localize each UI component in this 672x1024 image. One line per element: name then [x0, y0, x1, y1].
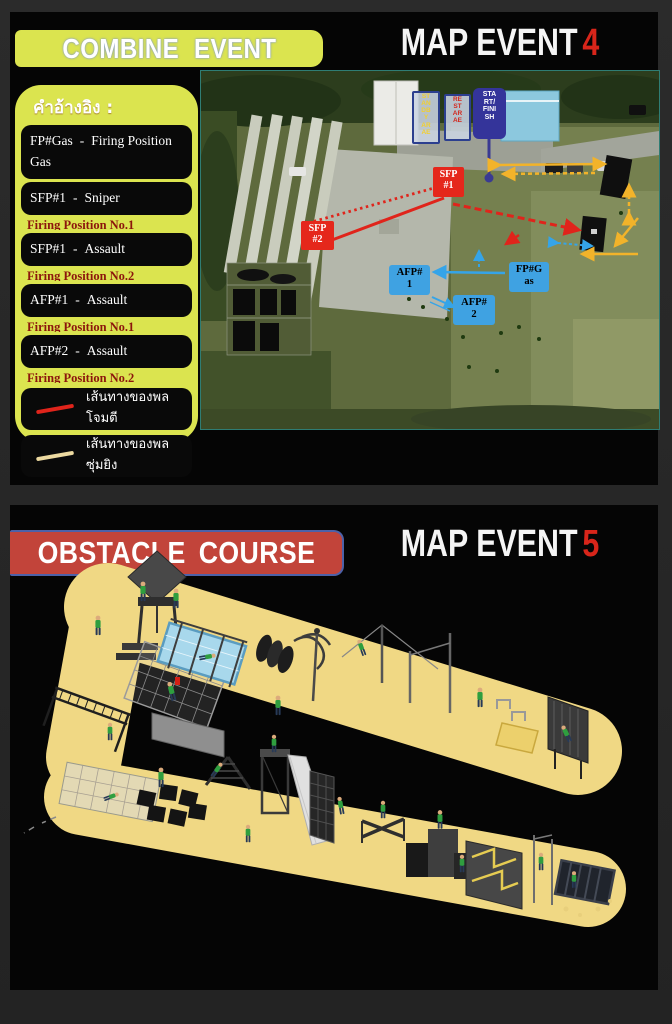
slide-map-event-5: OBSTACLE COURSE MAP EVENT5 [10, 505, 658, 990]
standby-area-label: ST AN DB Y AR AE [412, 91, 440, 144]
poster-page: COMBINE EVENT MAP EVENT4 คำอ้างอิง : FP#… [0, 0, 672, 1024]
legend-route-assault: เส้นทางของพลโจมตี [21, 388, 192, 430]
legend-hidden-ref: Firing Position No.2 [27, 371, 198, 383]
slide4-title: MAP EVENT4 [384, 22, 616, 65]
sfp1-label: SFP #1 [433, 167, 464, 197]
sfp2-label: SFP #2 [301, 221, 334, 250]
fp-gas-label: FP#G as [509, 262, 549, 292]
legend-panel: คำอ้างอิง : FP#Gas-Firing Position Gas S… [15, 85, 198, 442]
legend-entry-sfp1-sniper: SFP#1-Sniper [21, 182, 192, 215]
legend-entry-afp2: AFP#2-Assault [21, 335, 192, 368]
legend-entry-sfp1-assault: SFP#1-Assault [21, 233, 192, 266]
legend-hidden-ref: Firing Position No.1 [27, 218, 198, 230]
combine-event-label: COMBINE EVENT [62, 33, 276, 65]
legend-entry-fpgas: FP#Gas-Firing Position Gas [21, 125, 192, 179]
tan-route-line-swatch [36, 451, 74, 461]
combine-event-banner: COMBINE EVENT [15, 30, 323, 67]
afp1-label: AFP# 1 [389, 265, 430, 295]
legend-entry-afp1: AFP#1-Assault [21, 284, 192, 317]
target-pit-structure [227, 263, 311, 355]
legend-hidden-ref: Firing Position No.2 [27, 269, 198, 281]
legend-hidden-ref: Firing Position No.1 [27, 320, 198, 332]
legend-route-sniper: เส้นทางของพลซุ่มยิง [21, 435, 192, 477]
obstacle-course-graphic [10, 505, 658, 990]
start-finish-label: STA RT/ FINI SH [473, 88, 506, 139]
aerial-map: ST AN DB Y AR AE RE ST AR AE STA RT/ FIN… [200, 70, 660, 430]
legend-title: คำอ้างอิง : [33, 94, 198, 121]
afp2-label: AFP# 2 [453, 295, 495, 325]
red-route-line-swatch [36, 404, 74, 414]
slide-map-event-4: COMBINE EVENT MAP EVENT4 คำอ้างอิง : FP#… [10, 12, 658, 485]
slide4-title-number: 4 [582, 22, 599, 64]
rest-area-label: RE ST AR AE [444, 94, 471, 141]
slide4-title-text: MAP EVENT [401, 22, 578, 64]
